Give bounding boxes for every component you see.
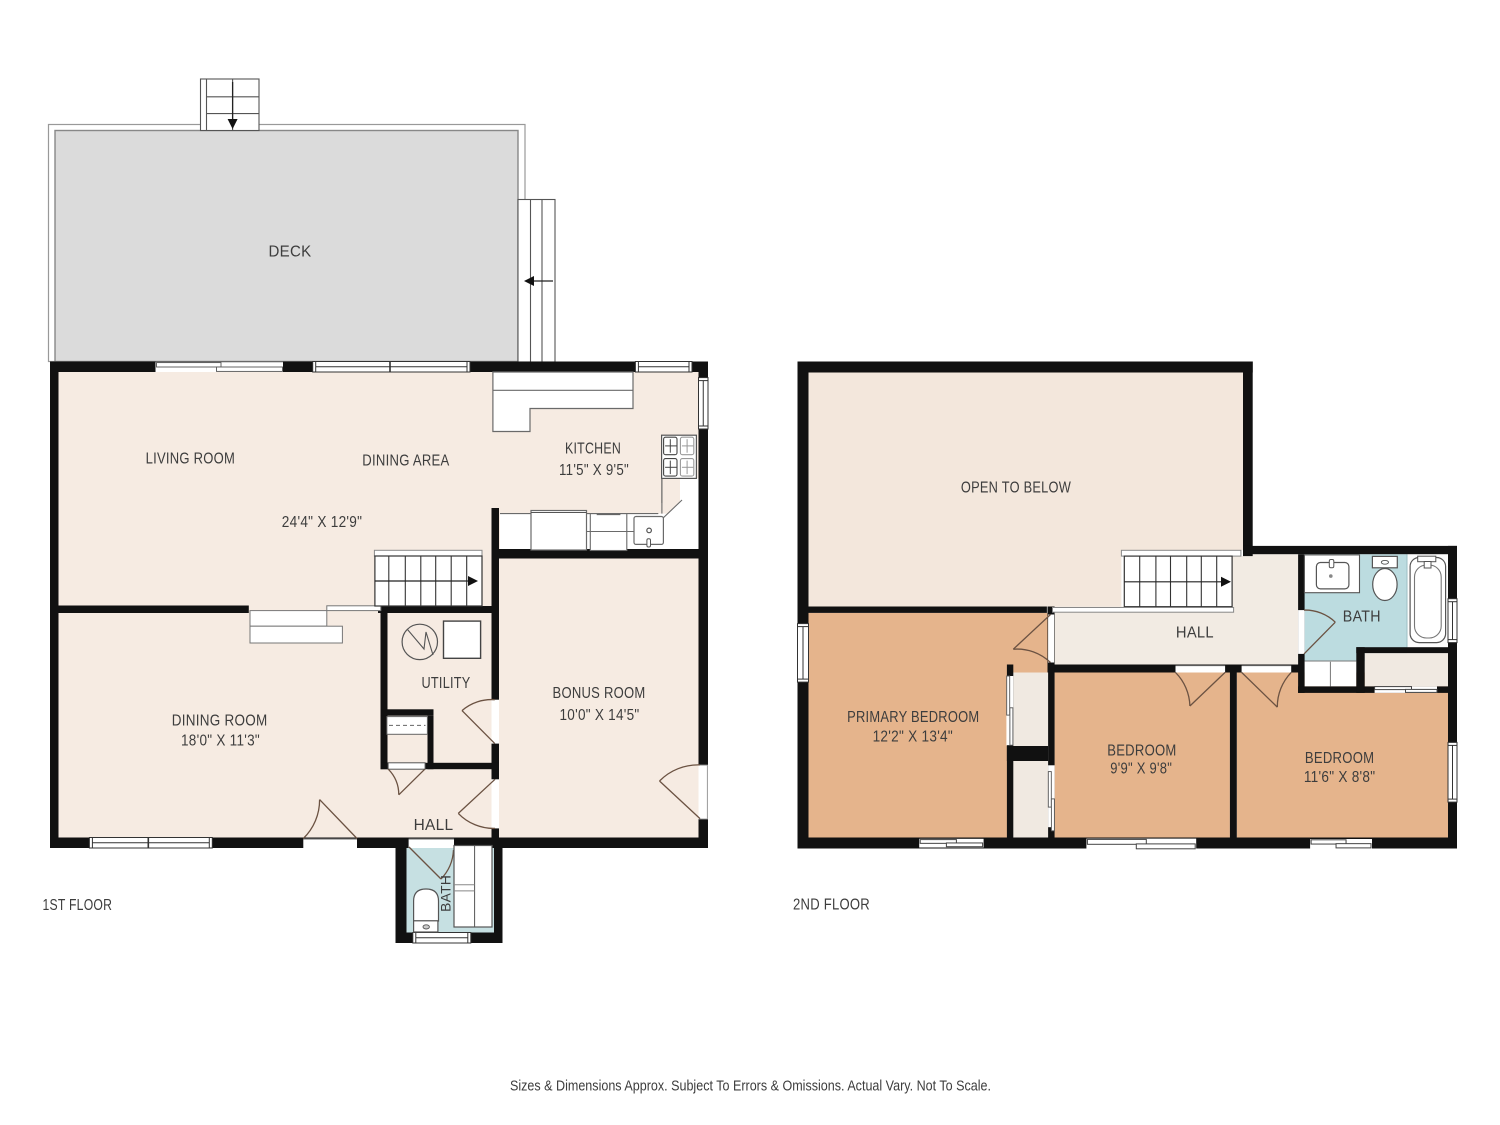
svg-text:HALL: HALL <box>414 817 454 834</box>
svg-text:BATH: BATH <box>1343 609 1381 626</box>
svg-text:9'9" X 9'8": 9'9" X 9'8" <box>1110 761 1172 778</box>
svg-text:OPEN TO BELOW: OPEN TO BELOW <box>961 479 1071 496</box>
svg-text:DINING ROOM: DINING ROOM <box>172 713 268 730</box>
svg-text:DECK: DECK <box>269 244 312 261</box>
svg-text:BEDROOM: BEDROOM <box>1107 743 1176 760</box>
svg-text:HALL: HALL <box>1176 625 1214 642</box>
svg-text:BONUS ROOM: BONUS ROOM <box>553 685 646 702</box>
svg-text:KITCHEN: KITCHEN <box>565 441 621 458</box>
svg-text:LIVING ROOM: LIVING ROOM <box>146 451 236 468</box>
svg-text:BATH: BATH <box>439 875 454 912</box>
svg-text:10'0" X 14'5": 10'0" X 14'5" <box>560 707 640 724</box>
svg-text:11'5" X 9'5": 11'5" X 9'5" <box>559 462 629 479</box>
svg-text:2ND FLOOR: 2ND FLOOR <box>793 897 870 914</box>
svg-text:24'4" X 12'9": 24'4" X 12'9" <box>282 514 363 531</box>
svg-text:BEDROOM: BEDROOM <box>1305 750 1374 767</box>
svg-text:Sizes & Dimensions Approx. Sub: Sizes & Dimensions Approx. Subject To Er… <box>510 1078 991 1095</box>
svg-text:1ST FLOOR: 1ST FLOOR <box>43 897 113 914</box>
svg-text:12'2" X 13'4": 12'2" X 13'4" <box>873 728 953 745</box>
svg-text:11'6" X 8'8": 11'6" X 8'8" <box>1304 769 1376 786</box>
svg-text:DINING AREA: DINING AREA <box>362 453 450 470</box>
svg-text:PRIMARY BEDROOM: PRIMARY BEDROOM <box>847 709 979 726</box>
svg-text:UTILITY: UTILITY <box>422 675 471 692</box>
svg-text:18'0" X 11'3": 18'0" X 11'3" <box>181 733 260 750</box>
